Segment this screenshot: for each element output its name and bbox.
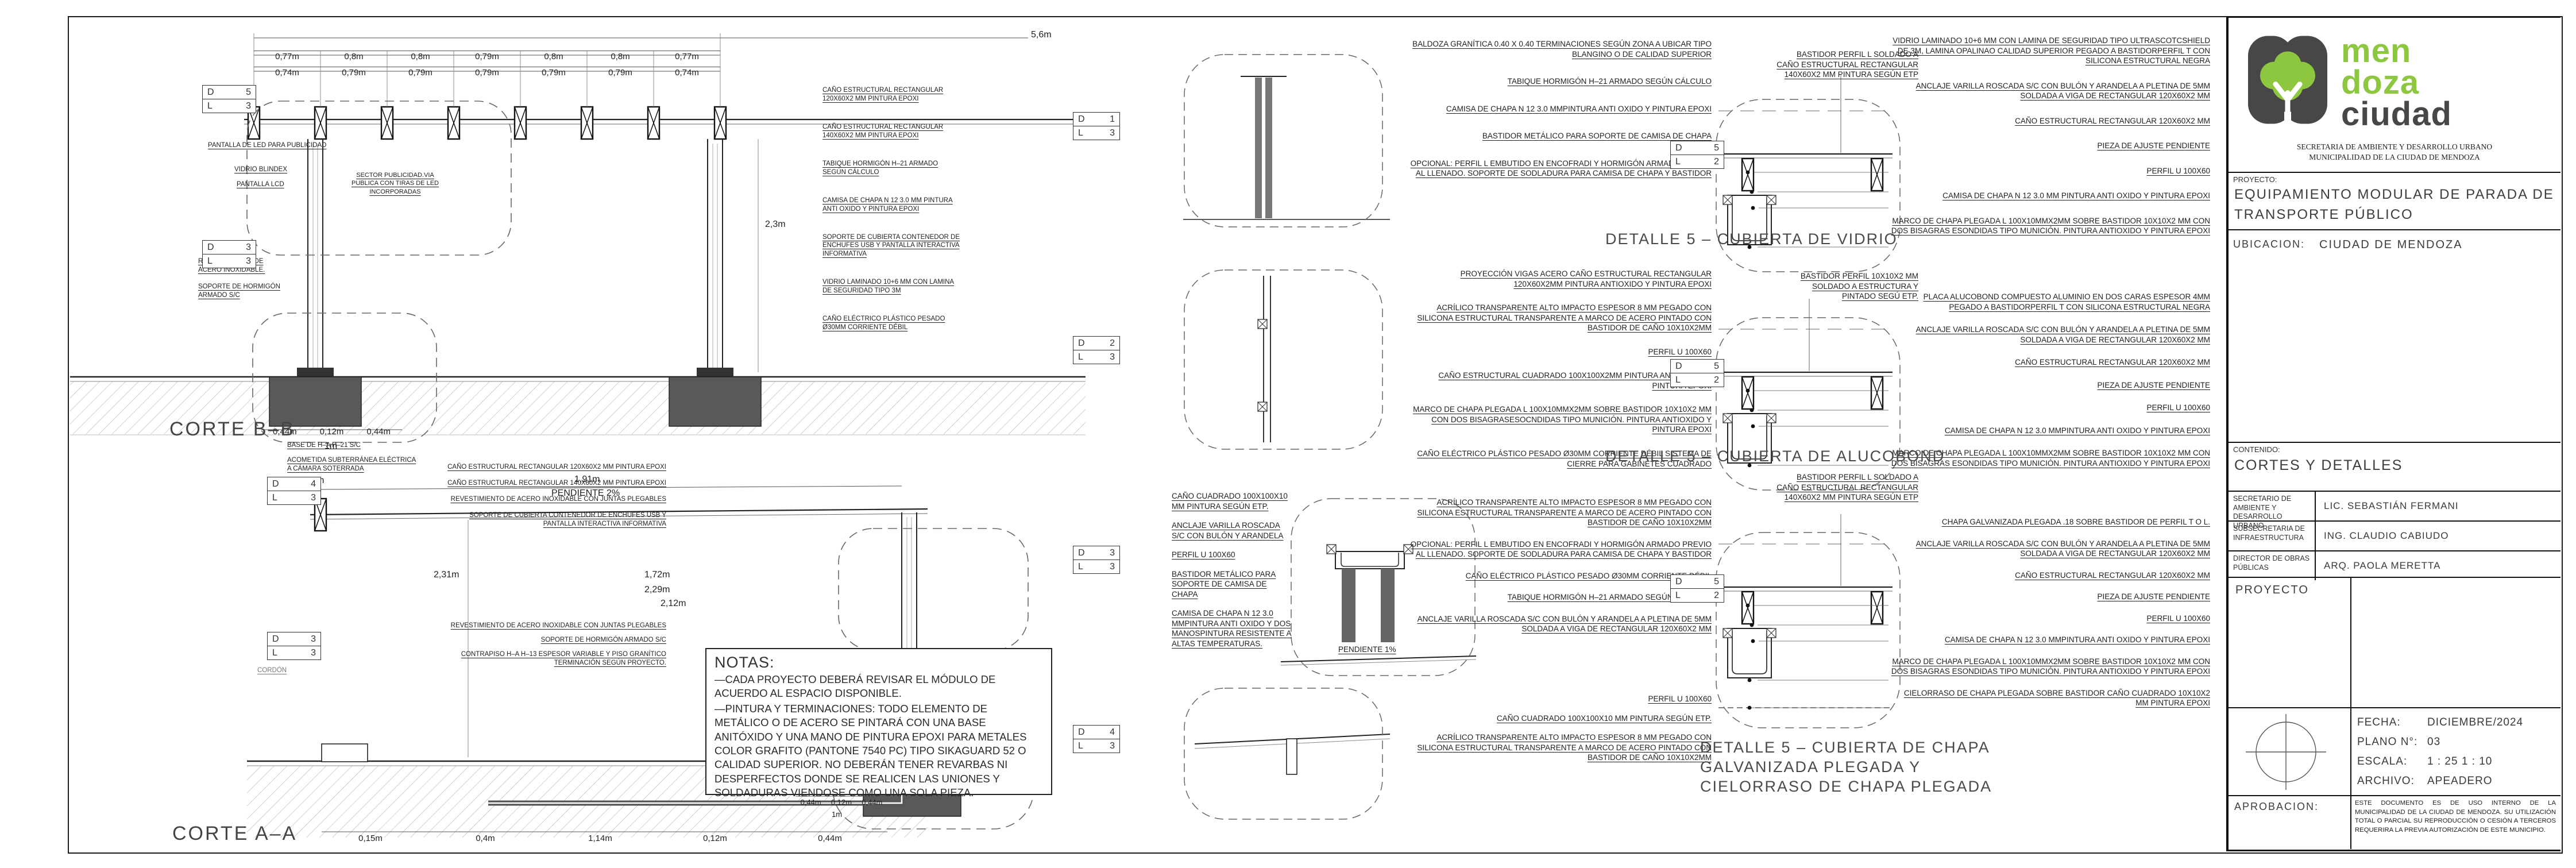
notas-line-2: —PINTURA Y TERMINACIONES: TODO ELEMENTO … bbox=[715, 702, 1043, 800]
disclaimer-text: ESTE DOCUMENTO ES DE USO INTERNO DE LA M… bbox=[2350, 796, 2560, 838]
logo-word-doza: doza bbox=[2341, 67, 2452, 98]
annotation: PIEZA DE AJUSTE PENDIENTE bbox=[2097, 141, 2210, 151]
annotation-stack-detail-3: CHAPA GALVANIZADA PLEGADA .18 SOBRE BAST… bbox=[1890, 517, 2210, 708]
annotation: ACRÍLICO TRANSPARENTE ALTO IMPACTO ESPES… bbox=[1410, 303, 1712, 333]
title-block: men doza ciudad SECRETARIA DE AMBIENTE Y… bbox=[2226, 16, 2560, 851]
annotation: PERFIL U 100X60 bbox=[1648, 347, 1712, 357]
contenido-label: CONTENIDO: bbox=[2229, 443, 2560, 454]
dimension-label: 1,14m bbox=[543, 833, 658, 843]
firmante-row: SUBSECRETARIA DE INFRAESTRUCTURA ING. CL… bbox=[2229, 522, 2560, 551]
detail-callout-bubble: D2 L3 bbox=[1073, 336, 1120, 364]
annotation: BASTIDOR METÁLICO PARA SOPORTE DE CAMISA… bbox=[1172, 569, 1292, 600]
annotation: REVESTIMIENTO DE ACERO INOXIDABLE CON JU… bbox=[451, 495, 666, 504]
detail-callout-bubble: D5 L2 bbox=[1670, 141, 1724, 169]
dimension-label: 0,74m bbox=[654, 67, 720, 78]
label-sector-publicidad: SECTOR PUBLICIDAD.VIA PUBLICA CON TIRAS … bbox=[343, 171, 447, 196]
contenido-value: CORTES Y DETALLES bbox=[2229, 454, 2560, 477]
dimension-label: 0,8m bbox=[387, 51, 454, 61]
firmante-cargo: DIRECTOR DE OBRAS PÚBLICAS bbox=[2229, 551, 2316, 580]
annotation: CAMISA DE CHAPA N 12 3.0 MM PINTURA ANTI… bbox=[1942, 191, 2210, 201]
annotation: MARCO DE CHAPA PLEGADA L 100X10MMX2MM SO… bbox=[1890, 216, 2210, 236]
dimension-label: 0,77m bbox=[654, 51, 720, 61]
annotation: CAÑO ESTRUCTURAL RECTANGULAR 140X60X2 MM… bbox=[822, 123, 960, 140]
detail-callout-bubble: D3 L3 bbox=[267, 632, 321, 660]
annotation-stack-aa-top: CAÑO ESTRUCTURAL RECTANGULAR 120X60X2 MM… bbox=[437, 463, 666, 528]
dimension-label: 0,44m bbox=[773, 833, 887, 843]
annotation: CAÑO ESTRUCTURAL RECTANGULAR 120X60X2 MM bbox=[2015, 357, 2210, 368]
annotation: PERFIL U 100X60 bbox=[2146, 166, 2210, 176]
firmante-row: DIRECTOR DE OBRAS PÚBLICAS ARQ. PAOLA ME… bbox=[2229, 551, 2560, 580]
annotation-stack-bb: CAÑO ESTRUCTURAL RECTANGULAR 120X60X2 MM… bbox=[822, 86, 960, 332]
annotation-stack-middle-1: BALDOZA GRANÍTICA 0.40 X 0.40 TERMINACIO… bbox=[1410, 39, 1712, 179]
annotation: CAÑO CUADRADO 100X100X10 MM PINTURA SEGÚ… bbox=[1172, 491, 1292, 511]
dimension-label: 0,79m bbox=[387, 67, 454, 78]
annotation: PERFIL U 100X60 bbox=[1648, 694, 1712, 704]
proyecto-row-label: PROYECTO bbox=[2229, 578, 2560, 597]
annotation: MARCO DE CHAPA PLEGADA L 100X10MMX2MM SO… bbox=[1890, 657, 2210, 677]
annotation: CAMISA DE CHAPA N 12 3.0 MMPINTURA ANTI … bbox=[1945, 635, 2210, 645]
title-block-proyecto-row: PROYECTO: EQUIPAMIENTO MODULAR DE PARADA… bbox=[2229, 173, 2560, 230]
title-block-contenido-row: CONTENIDO: CORTES Y DETALLES bbox=[2229, 443, 2560, 492]
annotation: ACRÍLICO TRANSPARENTE ALTO IMPACTO ESPES… bbox=[1410, 732, 1712, 763]
annotation: CONTRAPISO H–A H–13 ESPESOR VARIABLE Y P… bbox=[437, 650, 666, 668]
annotation-stack-detail-2: PLACA ALUCOBOND COMPUESTO ALUMINIO EN DO… bbox=[1890, 292, 2210, 468]
annotation: MARCO DE CHAPA PLEGADA L 100X10MMX2MM SO… bbox=[1410, 404, 1712, 435]
annotation-stack-aa-bottom: REVESTIMIENTO DE ACERO INOXIDABLE CON JU… bbox=[437, 622, 666, 668]
dimension-label: 0,79m bbox=[520, 67, 587, 78]
annotation: BALDOZA GRANÍTICA 0.40 X 0.40 TERMINACIO… bbox=[1410, 39, 1712, 59]
detail-1-title: DETALLE 5 – CUBIERTA DE VIDRIO bbox=[1605, 230, 1898, 249]
dimension-label: 0,12m bbox=[658, 833, 773, 843]
proyecto-value: EQUIPAMIENTO MODULAR DE PARADA DE TRANSP… bbox=[2229, 184, 2560, 226]
detail-callout-bubble: D4 L3 bbox=[1073, 725, 1120, 753]
annotation: PIEZA DE AJUSTE PENDIENTE bbox=[2097, 380, 2210, 391]
logo-word-men: men bbox=[2341, 35, 2452, 67]
dim-229: 2,29m bbox=[644, 585, 670, 595]
annotation: CAÑO ESTRUCTURAL RECTANGULAR 140X60X2 MM… bbox=[447, 479, 666, 488]
annotation: TABIQUE HORMIGÓN H–21 ARMADO SEGÚN CÁLCU… bbox=[822, 160, 960, 177]
notas-title: NOTAS: bbox=[715, 654, 1043, 672]
firmante-nombre: ARQ. PAOLA MERETTA bbox=[2316, 551, 2560, 580]
annotation-stack-middle-3: CAÑO CUADRADO 100X100X10 MM PINTURA SEGÚ… bbox=[1172, 491, 1292, 649]
annotation: PERFIL U 100X60 bbox=[1172, 550, 1235, 560]
dimension-label: 0,44m bbox=[355, 426, 402, 437]
detail-callout-bubble: D1 L3 bbox=[1073, 112, 1120, 140]
title-block-logo-row: men doza ciudad SECRETARIA DE AMBIENTE Y… bbox=[2229, 18, 2560, 173]
label-pantalla-led: PANTALLA DE LED PARA PUBLICIDAD bbox=[208, 141, 329, 150]
annotation: CAÑO ELÉCTRICO PLÁSTICO PESADO Ø30MM COR… bbox=[822, 315, 960, 332]
annotation: ANCLAJE VARILLA ROSCADA S/C CON BULÓN Y … bbox=[1890, 539, 2210, 559]
annotation: ACRÍLICO TRANSPARENTE ALTO IMPACTO ESPES… bbox=[1410, 497, 1712, 528]
logo-word-ciudad: ciudad bbox=[2341, 98, 2452, 130]
ubicacion-label: UBICACION: bbox=[2233, 238, 2319, 252]
firmante-nombre: LIC. SEBASTIÁN FERMANI bbox=[2316, 492, 2560, 520]
title-block-aprobacion-row: APROBACION: ESTE DOCUMENTO ES DE USO INT… bbox=[2229, 796, 2560, 849]
annotation: OPCIONAL: PERFIL L EMBUTIDO EN ENCOFRADI… bbox=[1410, 539, 1712, 560]
detail-3-top-label: BASTIDOR PERFIL L SOLDADO A CAÑO ESTRUCT… bbox=[1775, 472, 1918, 503]
firmante-nombre: ING. CLAUDIO CABIUDO bbox=[2316, 522, 2560, 550]
corte-bb-title: CORTE B–B bbox=[169, 418, 295, 441]
annotation: TABIQUE HORMIGÓN H–21 ARMADO SEGÚN CÁLCU… bbox=[1508, 76, 1712, 87]
annotation: SOPORTE DE CUBIERTA CONTENEDOR DE ENCHUF… bbox=[822, 233, 960, 259]
title-block-firmantes: SECRETARIO DE AMBIENTE Y DESARROLLO URBA… bbox=[2229, 492, 2560, 578]
label-pantalla-lcd: PANTALLA LCD bbox=[237, 180, 284, 189]
dimension-label: 0,79m bbox=[320, 67, 387, 78]
annotation: PROYECCIÓN VIGAS ACERO CAÑO ESTRUCTURAL … bbox=[1410, 269, 1712, 289]
detail-callout-bubble: D3 L3 bbox=[1073, 546, 1120, 574]
annotation: CIELORRASO DE CHAPA PLEGADA SOBRE BASTID… bbox=[1890, 688, 2210, 708]
dim-row-aa-bottom: 0,15m0,4m1,14m0,12m0,44m bbox=[313, 833, 887, 843]
annotation: CAÑO ESTRUCTURAL RECTANGULAR 120X60X2 MM… bbox=[822, 86, 960, 103]
dimension-label: 0,79m bbox=[587, 67, 654, 78]
annotation: CAÑO ESTRUCTURAL RECTANGULAR 120X60X2 MM bbox=[2015, 570, 2210, 581]
annotation: SOPORTE DE CUBIERTA CONTENEDOR DE ENCHUF… bbox=[437, 511, 666, 528]
annotation: ANCLAJE VARILLA ROSCADA S/C CON BULÓN Y … bbox=[1410, 614, 1712, 634]
firmante-row: SECRETARIO DE AMBIENTE Y DESARROLLO URBA… bbox=[2229, 492, 2560, 522]
dim-height-bb: 2,3m bbox=[765, 219, 786, 230]
secretaria-text: SECRETARIA DE AMBIENTE Y DESARROLLO URBA… bbox=[2229, 142, 2560, 163]
annotation: CAMISA DE CHAPA N 12 3.0 MMPINTURA ANTI … bbox=[1172, 608, 1292, 649]
notas-box: NOTAS: —CADA PROYECTO DEBERÁ REVISAR EL … bbox=[705, 648, 1052, 795]
plan-sheet: 5,6m 0,77m0,8m0,8m0,79m0,8m0,8m0,77m 0,7… bbox=[0, 0, 2576, 868]
annotation: PERFIL U 100X60 bbox=[2146, 614, 2210, 624]
annotation: SOPORTE DE HORMIGÓN ARMADO S/C bbox=[541, 636, 666, 645]
annotation: VIDRIO LAMINADO 10+6 MM CON LAMINA DE SE… bbox=[822, 278, 960, 295]
dim-172: 1,72m bbox=[644, 570, 670, 580]
detail-2-title: DETALLE 5 – CUBIERTA DE ALUCOBOND bbox=[1605, 447, 1945, 466]
dim-row-bb-2: 0,74m0,79m0,79m0,79m0,79m0,79m0,74m bbox=[254, 67, 720, 78]
dim-row-bb-1: 0,77m0,8m0,8m0,79m0,8m0,8m0,77m bbox=[254, 51, 720, 61]
logo-wordmark: men doza ciudad bbox=[2341, 35, 2452, 130]
annotation: CAMISA DE CHAPA N 12 3.0 MMPINTURA ANTI … bbox=[1945, 426, 2210, 436]
annotation-stack-middle-4: ACRÍLICO TRANSPARENTE ALTO IMPACTO ESPES… bbox=[1410, 497, 1712, 634]
north-compass-icon bbox=[2229, 708, 2350, 796]
annotation: CAÑO ESTRUCTURAL CUADRADO 100X100X2MM PI… bbox=[1410, 371, 1712, 391]
notas-line-1: —CADA PROYECTO DEBERÁ REVISAR EL MÓDULO … bbox=[715, 673, 1043, 701]
detail-callout-bubble: D3 L3 bbox=[202, 240, 256, 268]
aprobacion-label: APROBACION: bbox=[2229, 796, 2350, 813]
dimension-label: 0,74m bbox=[254, 67, 320, 78]
dimension-label: 0,77m bbox=[254, 51, 320, 61]
detail-callout-bubble: D5 L2 bbox=[1670, 359, 1724, 387]
detail-callout-bubble: D5 L2 bbox=[1670, 574, 1724, 603]
title-block-ubicacion-row: UBICACION: CIUDAD DE MENDOZA bbox=[2229, 230, 2560, 443]
dimension-label: 0,15m bbox=[313, 833, 428, 843]
dim-total-bb: 5,6m bbox=[1031, 30, 1052, 40]
detail-callout-bubble: D5 L3 bbox=[202, 85, 256, 113]
annotation: ANCLAJE VARILLA ROSCADA S/C CON BULÓN Y … bbox=[1172, 520, 1292, 541]
dimension-label: 0,79m bbox=[454, 51, 520, 61]
annotation: REVESTIMIENTO DE ACERO INOXIDABLE CON JU… bbox=[451, 622, 666, 630]
annotation: ANCLAJE VARILLA ROSCADA S/C CON BULÓN Y … bbox=[1890, 81, 2210, 101]
annotation: OPCIONAL: PERFIL L EMBUTIDO EN ENCOFRADI… bbox=[1410, 159, 1712, 179]
dimension-label: 0,4m bbox=[428, 833, 543, 843]
title-block-meta-row: FECHA: DICIEMBRE/2024 PLANO N°: 03 ESCAL… bbox=[2229, 708, 2560, 796]
label-pendiente-1: PENDIENTE 1% bbox=[1338, 645, 1396, 655]
dimension-label: 0,8m bbox=[520, 51, 587, 61]
annotation: CAÑO CUADRADO 100X100X10 MM PINTURA SEGÚ… bbox=[1497, 713, 1712, 724]
annotation: ANCLAJE VARILLA ROSCADA S/C CON BULÓN Y … bbox=[1890, 325, 2210, 345]
detail-3-title: DETALLE 5 – CUBIERTA DE CHAPA GALVANIZAD… bbox=[1700, 738, 1999, 796]
annotation: CAÑO ESTRUCTURAL RECTANGULAR 120X60X2 MM… bbox=[447, 463, 666, 472]
archivo-line: ARCHIVO: APEADERO bbox=[2350, 775, 2560, 788]
label-soporte-hormigon: SOPORTE DE HORMIGÓN ARMADO S/C bbox=[198, 283, 290, 300]
label-vidrio-blindex: VIDRIO BLINDEX bbox=[234, 165, 287, 174]
title-block-proyecto-empty-row: PROYECTO bbox=[2229, 578, 2560, 708]
escala-line: ESCALA: 1 : 25 1 : 10 bbox=[2350, 755, 2560, 768]
mendoza-ciudad-logo-icon bbox=[2245, 30, 2331, 126]
annotation: CAMISA DE CHAPA N 12 3.0 MMPINTURA ANTI … bbox=[1446, 104, 1712, 114]
annotation: CHAPA GALVANIZADA PLEGADA .18 SOBRE BAST… bbox=[1942, 517, 2210, 527]
ubicacion-value: CIUDAD DE MENDOZA bbox=[2319, 238, 2463, 252]
dimension-label: 0,8m bbox=[587, 51, 654, 61]
label-base-ha: BASE DE H–A H–21 S/C bbox=[287, 441, 361, 450]
dimension-label: 0,79m bbox=[454, 67, 520, 78]
dim-212: 2,12m bbox=[661, 599, 686, 609]
dimension-label: 0,12m bbox=[308, 426, 356, 437]
dimension-label: 0,8m bbox=[320, 51, 387, 61]
dim-231: 2,31m bbox=[434, 570, 459, 580]
proyecto-label: PROYECTO: bbox=[2229, 173, 2560, 184]
annotation-stack-detail-1: VIDRIO LAMINADO 10+6 MM CON LAMINA DE SE… bbox=[1890, 36, 2210, 236]
firmante-cargo: SECRETARIO DE AMBIENTE Y DESARROLLO URBA… bbox=[2229, 492, 2316, 520]
fecha-line: FECHA: DICIEMBRE/2024 bbox=[2350, 716, 2560, 729]
annotation: BASTIDOR METÁLICO PARA SOPORTE DE CAMISA… bbox=[1482, 131, 1712, 141]
dim-base-total-aa: 1m bbox=[832, 810, 842, 819]
corte-aa-title: CORTE A–A bbox=[172, 823, 297, 845]
annotation-stack-middle-5: PERFIL U 100X60CAÑO CUADRADO 100X100X10 … bbox=[1410, 694, 1712, 763]
annotation: PIEZA DE AJUSTE PENDIENTE bbox=[2097, 592, 2210, 602]
annotation-stack-middle-2: PROYECCIÓN VIGAS ACERO CAÑO ESTRUCTURAL … bbox=[1410, 269, 1712, 469]
annotation: PERFIL U 100X60 bbox=[2146, 403, 2210, 413]
label-cordon: CORDÓN bbox=[257, 666, 287, 675]
firmante-cargo: SUBSECRETARIA DE INFRAESTRUCTURA bbox=[2229, 522, 2316, 550]
annotation: CAÑO ESTRUCTURAL RECTANGULAR 120X60X2 MM bbox=[2015, 116, 2210, 126]
annotation: CAMISA DE CHAPA N 12 3.0 MM PINTURA ANTI… bbox=[822, 196, 960, 214]
detail-callout-bubble: D4 L3 bbox=[267, 477, 321, 505]
annotation: PLACA ALUCOBOND COMPUESTO ALUMINIO EN DO… bbox=[1890, 292, 2210, 312]
plano-line: PLANO N°: 03 bbox=[2350, 736, 2560, 749]
annotation: VIDRIO LAMINADO 10+6 MM CON LAMINA DE SE… bbox=[1890, 36, 2210, 66]
label-acometida: ACOMETIDA SUBTERRÁNEA ELÉCTRICA A CÁMARA… bbox=[287, 456, 419, 473]
